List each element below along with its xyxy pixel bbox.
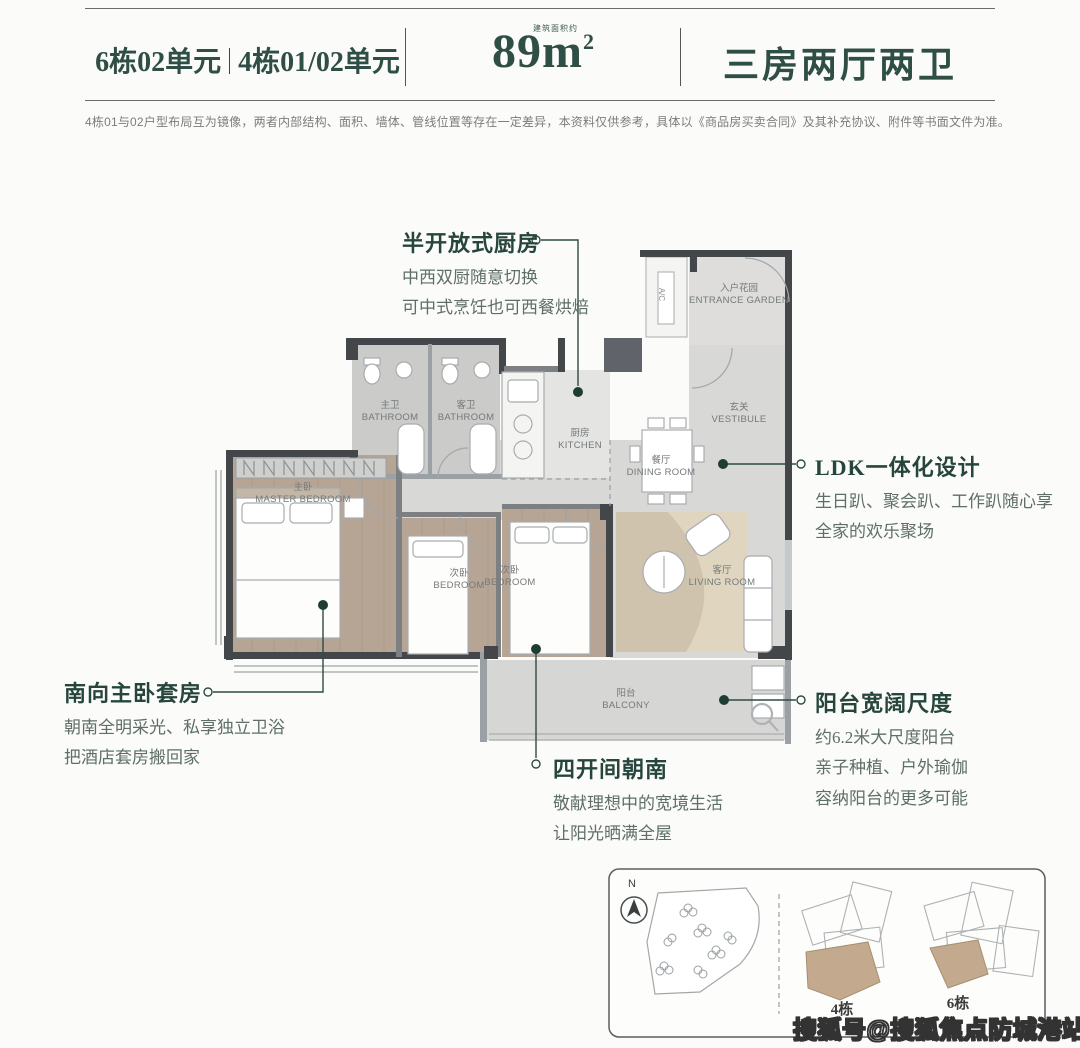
ac-closet-label: A/C bbox=[657, 288, 666, 301]
room-label-master-bedroom: 主卧 MASTER BEDROOM bbox=[255, 482, 351, 507]
room-label-entrance-garden: 入户花园 ENTRANCE GARDEN bbox=[689, 283, 789, 308]
floorplan-flyer: 6栋02单元4栋01/02单元 建筑面积约89m2 三房两厅两卫 4栋01与02… bbox=[0, 0, 1080, 1048]
room-label-dining: 餐厅 DINING ROOM bbox=[627, 455, 696, 480]
room-label-balcony: 阳台 BALCONY bbox=[602, 688, 650, 713]
compass-north-label: N bbox=[628, 878, 636, 890]
watermark-text: 搜狐号@搜狐焦点防城港站 bbox=[793, 1010, 1080, 1045]
annotation-kitchen: 半开放式厨房 中西双厨随意切换 可中式烹饪也可西餐烘焙 bbox=[402, 226, 589, 319]
room-label-vestibule: 玄关 VESTIBULE bbox=[712, 402, 767, 427]
annotation-ldk: LDK一体化设计 生日趴、聚会趴、工作趴随心享 全家的欢乐聚场 bbox=[815, 450, 1053, 543]
room-label-guest-bath: 客卫 BATHROOM bbox=[438, 400, 495, 425]
room-label-living: 客厅 LIVING ROOM bbox=[689, 565, 756, 590]
annotation-master-suite: 南向主卧套房 朝南全明采光、私享独立卫浴 把酒店套房搬回家 bbox=[64, 676, 285, 769]
room-label-master-bath: 主卫 BATHROOM bbox=[362, 400, 419, 425]
room-label-bedroom-2: 次卧 BEDROOM bbox=[433, 568, 484, 593]
wardrobe-hatch bbox=[236, 458, 386, 478]
room-label-kitchen: 厨房 KITCHEN bbox=[558, 428, 602, 453]
room-label-bedroom-3: 次卧 BEDROOM bbox=[484, 565, 535, 590]
annotation-balcony: 阳台宽阔尺度 约6.2米大尺度阳台 亲子种植、户外瑜伽 容纳阳台的更多可能 bbox=[815, 686, 968, 809]
annotation-south-facing: 四开间朝南 敬献理想中的宽境生活 让阳光晒满全屋 bbox=[553, 752, 723, 845]
